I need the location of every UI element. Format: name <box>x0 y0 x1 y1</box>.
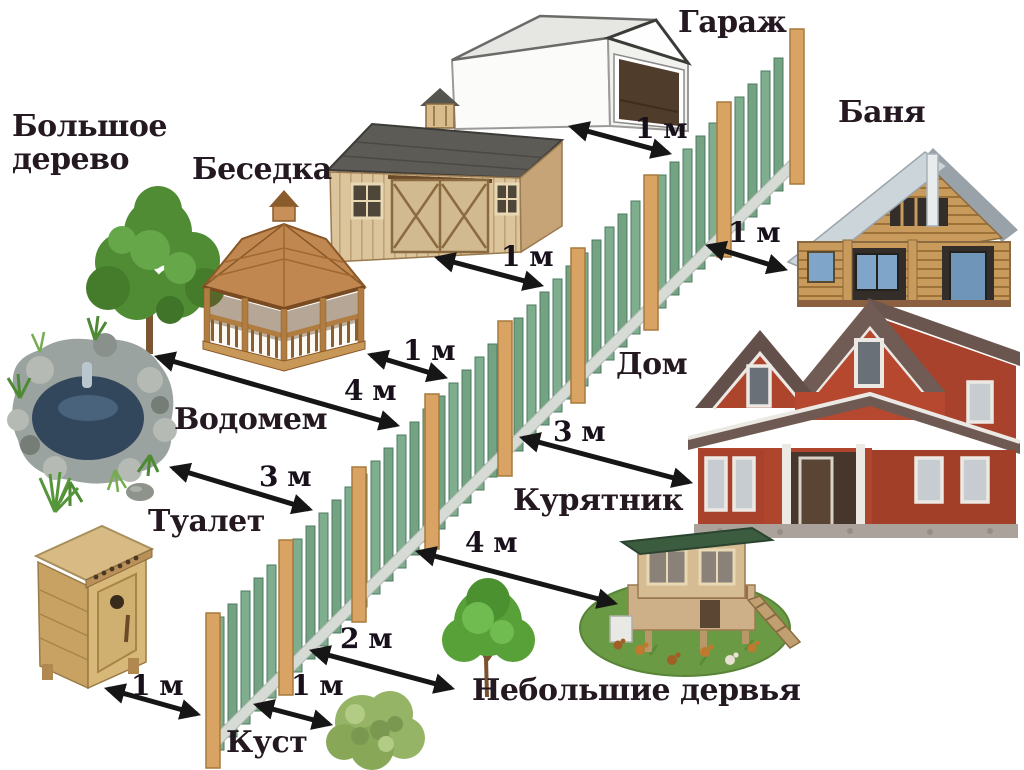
label-small-trees: Небольшие дервья <box>472 674 800 707</box>
label-big-tree: Большое дерево <box>12 110 197 176</box>
label-coop: Курятник <box>513 484 683 517</box>
house-bay-window <box>700 450 764 528</box>
distance-coop-fence: 4 м <box>465 526 517 559</box>
distance-pond-fence: 3 м <box>259 460 311 493</box>
shed-doors <box>388 177 492 252</box>
house-illustration <box>688 298 1020 538</box>
label-garage: Гараж <box>678 6 786 39</box>
site-plan-diagram: Гараж Баня Большое дерево Беседка Водоме… <box>0 0 1024 770</box>
label-banya: Баня <box>838 96 925 129</box>
shed-window-left <box>352 184 382 218</box>
distance-small-trees-fence: 2 м <box>340 622 392 655</box>
distance-toilet-fence: 1 м <box>131 669 183 702</box>
distance-banya-fence: 1 м <box>728 216 780 249</box>
distance-shed-fence: 1 м <box>501 240 553 273</box>
arrow-fence-house <box>523 438 689 482</box>
label-toilet: Туалет <box>148 505 265 538</box>
toilet-illustration <box>36 526 152 688</box>
distance-big-tree-fence: 4 м <box>344 374 396 407</box>
label-house: Дом <box>616 348 687 381</box>
rock <box>126 483 154 501</box>
banya-illustration <box>788 148 1018 307</box>
distance-bush-fence: 1 м <box>291 669 343 702</box>
distance-house-fence: 3 м <box>553 415 605 448</box>
label-gazebo: Беседка <box>192 153 332 186</box>
label-bush: Куст <box>226 726 307 759</box>
toilet-door-window <box>110 595 124 609</box>
house-porch <box>782 444 865 528</box>
arrow-fence-bush <box>257 705 329 724</box>
label-pond: Водомем <box>174 403 327 436</box>
distance-gazebo-fence: 1 м <box>403 334 455 367</box>
shed-window-right <box>496 184 518 214</box>
distance-garage-fence: 1 м <box>635 112 687 145</box>
bush-illustration <box>326 691 425 770</box>
arrow-fence-coop <box>419 552 614 603</box>
